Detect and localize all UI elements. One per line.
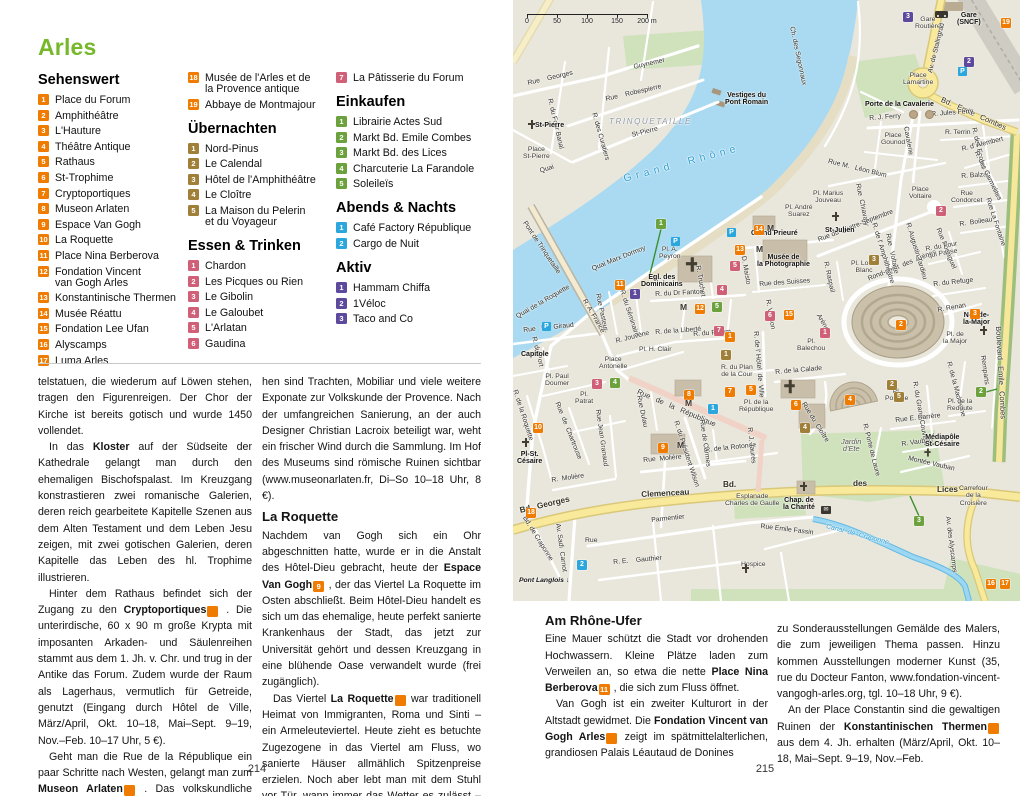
paragraph: telstatuen, die wiederum auf Löwen stehe… xyxy=(38,374,252,439)
inline-map-marker: 7 xyxy=(207,606,218,617)
map-marker-aktiv-3: 3 xyxy=(903,12,913,22)
bold-text-run: Museon Arlaten xyxy=(38,783,123,795)
map-label: St-Pierre xyxy=(535,122,564,129)
legend-item-number: 2 xyxy=(336,238,347,249)
legend-item-label: Les Picques ou Rien xyxy=(205,276,303,288)
legend-item: 16Alyscamps xyxy=(38,339,188,351)
map-marker-hotel-3: 3 xyxy=(869,255,879,265)
city-gate-icon xyxy=(925,110,934,119)
map-marker-sehenswert-15: 15 xyxy=(784,310,794,320)
map-marker-sehenswert-7: 7 xyxy=(725,387,735,397)
legend-item: 2Cargo de Nuit xyxy=(336,238,486,250)
legend-section-heading: Essen & Trinken xyxy=(188,238,338,254)
map-marker-sehenswert-18: 18 xyxy=(526,508,536,518)
legend-item: 5L'Arlatan xyxy=(188,322,338,334)
legend-item-number: 4 xyxy=(336,163,347,174)
map-label: Place Lamartine xyxy=(903,72,933,87)
legend-item-label: Gaudina xyxy=(205,338,245,350)
map-label: Bd. de Craponne xyxy=(521,515,555,563)
map-label: Egl. des Dominicains xyxy=(641,274,683,289)
map-label: Quai de la Roquette xyxy=(515,284,571,321)
map-label: Pl-St. Césaire xyxy=(517,451,542,466)
museum-icon: M xyxy=(677,441,684,450)
map-marker-hotel-2: 2 xyxy=(887,380,897,390)
divider-line xyxy=(38,363,481,364)
map-label: Clemenceau xyxy=(641,488,690,498)
legend-block: Essen & Trinken1Chardon2Les Picques ou R… xyxy=(188,238,338,350)
map-label: Ch. des Segonnaux xyxy=(788,26,808,86)
legend-item-label: Abbaye de Montmajour xyxy=(205,99,316,111)
legend-item-number: 3 xyxy=(38,125,49,136)
legend-item: 3Le Gibolin xyxy=(188,291,338,303)
legend-column-2: 18Musée de l'Arles et de la Provence ant… xyxy=(188,72,338,354)
legend-item-label: Amphithéâtre xyxy=(55,110,119,122)
paragraph: Geht man die Rue de la République ein pa… xyxy=(38,749,252,796)
map-marker-einkaufen-4: 4 xyxy=(610,378,620,388)
page-title: Arles xyxy=(38,34,97,61)
text-run: , der das Viertel La Roquette im Osten a… xyxy=(262,579,481,689)
legend-block: Aktiv1Hammam Chiffa21Véloc3Taco and Co xyxy=(336,260,486,325)
paragraph: Hinter dem Rathaus befindet sich der Zug… xyxy=(38,586,252,749)
map-label: R. Porte de Laure xyxy=(861,423,881,477)
text-run: telstatuen, die wiederum auf Löwen stehe… xyxy=(38,376,252,437)
legend-item-label: Librairie Actes Sud xyxy=(353,116,442,128)
page-number-left: 214 xyxy=(237,763,277,775)
legend-item-number: 2 xyxy=(38,110,49,121)
inline-map-marker: 10 xyxy=(395,695,406,706)
map-marker-hotel-4: 4 xyxy=(800,423,810,433)
paragraph: Das Viertel La Roquette10 war traditione… xyxy=(262,691,481,796)
legend-item: 4Charcuterie La Farandole xyxy=(336,163,486,175)
legend-item-number: 5 xyxy=(336,178,347,189)
legend-item-label: Le Galoubet xyxy=(205,307,263,319)
legend-section-heading: Aktiv xyxy=(336,260,486,276)
map-marker-abends-2: 2 xyxy=(577,560,587,570)
map-marker-sehenswert-1: 1 xyxy=(725,332,735,342)
legend-item-label: L'Hauture xyxy=(55,125,101,137)
map-marker-sehenswert-14: 14 xyxy=(754,225,764,235)
map-label: Pl. André Suarez xyxy=(785,204,813,219)
inline-map-marker: 9 xyxy=(313,581,324,592)
legend-item: 2Les Picques ou Rien xyxy=(188,276,338,288)
parking-icon: P xyxy=(727,228,736,237)
map-marker-sehenswert-3: 3 xyxy=(970,309,980,319)
map-marker-einkaufen-1: 1 xyxy=(656,219,666,229)
map-marker-essen-5: 5 xyxy=(730,261,740,271)
map-marker-sehenswert-6: 6 xyxy=(791,400,801,410)
map-label: Remparts xyxy=(979,355,990,385)
map-label: Av. Sadi Carnot xyxy=(554,523,568,572)
map-label: des xyxy=(853,480,867,487)
legend-item-label: Fondation Lee Ufan xyxy=(55,323,149,335)
legend-item: 1Librairie Actes Sud xyxy=(336,116,486,128)
map-label: R. du Dr Fanton xyxy=(655,288,704,298)
legend-item-label: Place du Forum xyxy=(55,94,130,106)
bold-text-run: Konstantinischen Thermen xyxy=(844,721,987,733)
church-icon xyxy=(831,212,840,221)
scale-label: 50 xyxy=(553,18,561,25)
bus-station-icon xyxy=(935,11,948,18)
legend-item-label: Soleileïs xyxy=(353,178,393,190)
map-label: Esplanade Charles de Gaulle xyxy=(725,493,779,508)
legend-item-number: 4 xyxy=(188,307,199,318)
text-run: , die sich zum Fluss öffnet. xyxy=(611,682,740,694)
map-label: Place St-Pierre xyxy=(523,146,550,161)
map-label: Rue Emile Fassin xyxy=(760,523,814,537)
map-label: Cavalerie xyxy=(902,126,914,156)
map-label: Av. des Alyscamps xyxy=(944,516,958,573)
legend-item-number: 2 xyxy=(336,132,347,143)
map-label: R. des Curatiers xyxy=(590,112,611,161)
legend-section-heading: Einkaufen xyxy=(336,94,486,110)
map-label: R. de la Calade xyxy=(775,365,822,376)
map-label: Pl. de la Major xyxy=(943,331,967,346)
text-run: Geht man die Rue de la République ein pa… xyxy=(38,751,252,779)
map-label: Place Gounod xyxy=(881,132,905,147)
map-overlay: 050100150200 m Rue GeorgesGuynemerRue Ro… xyxy=(513,0,1020,601)
church-icon xyxy=(799,482,808,491)
map-marker-abends-1: 1 xyxy=(708,404,718,414)
body-column-4: zu Sonderausstellungen Gemälde des Maler… xyxy=(777,621,1000,768)
map-label: R. Boileau xyxy=(959,216,993,228)
map-label: Grand Rhône xyxy=(623,145,741,183)
legend-item-number: 3 xyxy=(336,313,347,324)
map-label: R. du Refuge xyxy=(933,277,974,289)
legend-item: 2Markt Bd. Emile Combes xyxy=(336,132,486,144)
map-label: Boulevard Emile Combes xyxy=(995,326,1007,419)
map-label: Pl. A. Peyron xyxy=(659,246,681,261)
map-label: Jardin d'Ete xyxy=(841,438,861,453)
map-label: Rue M. Léon Blum xyxy=(827,158,887,180)
map-label: St-Julien xyxy=(825,227,855,234)
legend-item: 1Chardon xyxy=(188,260,338,272)
map-label: Capitole xyxy=(521,351,549,358)
legend-item-label: La Roquette xyxy=(55,234,113,246)
inline-map-marker: 12 xyxy=(606,733,617,744)
legend-item-label: Taco and Co xyxy=(353,313,413,325)
map-label: Place Antonelle xyxy=(599,356,627,371)
legend-item: 6St-Trophime xyxy=(38,172,188,184)
map-marker-sehenswert-2: 2 xyxy=(896,320,906,330)
map-label: Guynemer xyxy=(633,57,666,71)
legend-item-label: Le Calendal xyxy=(205,158,262,170)
map-label: Montée Vauban xyxy=(907,455,955,473)
text-run: aus dem 4. Jh. erhalten (März/April, Okt… xyxy=(777,737,1000,765)
bold-text-run: La Roquette xyxy=(331,693,394,705)
legend-item-label: Hôtel de l'Amphithéâtre xyxy=(205,174,316,186)
legend-item-label: Musée Réattu xyxy=(55,308,122,320)
map-scale-bar: 050100150200 m xyxy=(527,8,651,26)
map-label: Porte de la Cavalerie xyxy=(865,101,934,108)
post-office-icon: ✉ xyxy=(821,506,831,514)
map-label: Pont de Trinquetaille xyxy=(521,220,562,276)
legend-item-number: 15 xyxy=(38,323,49,334)
paragraph: hen sind Trachten, Mobiliar und viele we… xyxy=(262,374,481,504)
legend-item-label: Hammam Chiffa xyxy=(353,282,430,294)
legend-item-number: 16 xyxy=(38,339,49,350)
body-column-1: telstatuen, die wiederum auf Löwen stehe… xyxy=(38,374,252,796)
legend-item-label: La Pâtisserie du Forum xyxy=(353,72,464,84)
legend-item: 3Taco and Co xyxy=(336,313,486,325)
guidebook-spread: Arles Sehenswert1Place du Forum2Amphithé… xyxy=(0,0,1020,796)
inline-map-marker: 13 xyxy=(988,723,999,734)
map-marker-sehenswert-16: 16 xyxy=(986,579,996,589)
legend-item-label: Rathaus xyxy=(55,156,95,168)
map-label: Gare (SNCF) xyxy=(957,12,981,27)
legend-item: 4Le Cloître xyxy=(188,189,338,201)
map-label: R. E. Gauthier xyxy=(613,555,662,567)
map-label: Rue Georges xyxy=(527,70,574,88)
legend-item-label: 1Véloc xyxy=(353,298,386,310)
legend-item-number: 2 xyxy=(188,158,199,169)
legend-item-number: 8 xyxy=(38,203,49,214)
map-marker-essen-6: 6 xyxy=(765,311,775,321)
parking-icon: P xyxy=(542,322,551,331)
parking-icon: P xyxy=(958,67,967,76)
map-marker-einkaufen-3: 3 xyxy=(914,516,924,526)
legend-item: 3L'Hauture xyxy=(38,125,188,137)
text-run: Das Viertel xyxy=(273,693,331,705)
legend-item: 1Place du Forum xyxy=(38,94,188,106)
inline-map-marker: 11 xyxy=(599,684,610,695)
inline-map-marker: 8 xyxy=(124,785,135,796)
legend-item: 9Espace Van Gogh xyxy=(38,219,188,231)
legend-item-number: 3 xyxy=(336,147,347,158)
legend-item: 5La Maison du Pelerin et du Voyageur xyxy=(188,205,338,228)
legend-item-number: 14 xyxy=(38,308,49,319)
map-label: Musée de la Photographie xyxy=(757,254,810,269)
legend-item-label: Konstantinische Thermen xyxy=(55,292,176,304)
legend-item: 1Hammam Chiffa xyxy=(336,282,486,294)
map-label: Pl. de la Redoute xyxy=(947,398,973,413)
map-marker-einkaufen-2: 2 xyxy=(976,387,986,397)
text-run: hen sind Trachten, Mobiliar und viele we… xyxy=(262,376,481,502)
map-label: Médiapôle St-Césaire xyxy=(925,434,960,449)
legend-item: 8Museon Arlaten xyxy=(38,203,188,215)
map-label: R. Molière xyxy=(551,472,585,484)
legend-item-number: 5 xyxy=(38,156,49,167)
legend-section-heading: Abends & Nachts xyxy=(336,200,486,216)
legend-item-label: La Maison du Pelerin et du Voyageur xyxy=(205,205,305,228)
map-label: Bd. xyxy=(723,481,736,488)
map-label: R. Terrin xyxy=(945,129,971,136)
map-marker-sehenswert-5: 5 xyxy=(746,385,756,395)
legend-item: 14Musée Réattu xyxy=(38,308,188,320)
map-marker-aktiv-1: 1 xyxy=(630,289,640,299)
legend-block: Einkaufen1Librairie Actes Sud2Markt Bd. … xyxy=(336,94,486,190)
church-icon xyxy=(979,326,988,335)
map-marker-hotel-1: 1 xyxy=(721,350,731,360)
map-label: R. Raspail xyxy=(822,261,836,293)
legend-item-label: St-Trophime xyxy=(55,172,113,184)
legend-item-label: Cryptoportiques xyxy=(55,188,130,200)
map-label: Rue Robespierre xyxy=(605,83,662,103)
legend-item: 21Véloc xyxy=(336,298,486,310)
map-marker-einkaufen-5: 5 xyxy=(712,302,722,312)
legend-item: 5Soleileïs xyxy=(336,178,486,190)
map-label: Quai Marx Dormoy xyxy=(591,245,647,273)
map-marker-essen-4: 4 xyxy=(717,285,727,295)
legend-item-number: 2 xyxy=(336,298,347,309)
legend-item: 19Abbaye de Montmajour xyxy=(188,99,338,111)
legend-item-number: 2 xyxy=(188,276,199,287)
legend-item: 5Rathaus xyxy=(38,156,188,168)
legend-item: 2Amphithéâtre xyxy=(38,110,188,122)
legend-item: 18Musée de l'Arles et de la Provence ant… xyxy=(188,72,338,95)
legend-item-number: 1 xyxy=(336,282,347,293)
text-run: In das xyxy=(49,441,93,453)
map-label: Rue Condorcet xyxy=(951,190,982,205)
map-label: Lices xyxy=(937,486,958,493)
map-label: Rue de Chartrouse xyxy=(553,401,583,461)
map-marker-essen-3: 3 xyxy=(592,379,602,389)
church-icon xyxy=(521,438,530,447)
legend-item: 4Théâtre Antique xyxy=(38,141,188,153)
paragraph: zu Sonderausstellungen Gemälde des Maler… xyxy=(777,621,1000,702)
page-number-right: 215 xyxy=(745,763,785,775)
legend-item-label: Museon Arlaten xyxy=(55,203,129,215)
scale-label: 0 xyxy=(525,18,529,25)
legend-block: Sehenswert1Place du Forum2Amphithéâtre3L… xyxy=(38,72,188,367)
legend-item-number: 6 xyxy=(188,338,199,349)
map-label: R. de la Roquette xyxy=(513,389,534,442)
map-label: Pl. Marius Jouveau xyxy=(813,190,843,205)
map-label: Pl. Paul Doumer xyxy=(545,373,569,388)
map-label: R. du Four qui Passe xyxy=(925,240,959,260)
legend-block: Übernachten1Nord-Pinus2Le Calendal3Hôtel… xyxy=(188,121,338,228)
legend-item-number: 1 xyxy=(336,222,347,233)
legend-item-label: Markt Bd. des Lices xyxy=(353,147,447,159)
legend-block: 7La Pâtisserie du Forum xyxy=(336,72,486,84)
legend-item-label: Espace Van Gogh xyxy=(55,219,141,231)
legend-item-label: Le Gibolin xyxy=(205,291,253,303)
paragraph: In das Kloster auf der Südseite der Kath… xyxy=(38,439,252,586)
legend-item: 13Konstantinische Thermen xyxy=(38,292,188,304)
legend-item: 6Gaudina xyxy=(188,338,338,350)
legend-item-label: Café Factory République xyxy=(353,222,471,234)
map-marker-hotel-5: 5 xyxy=(894,392,904,402)
map-label: Quai xyxy=(539,164,555,175)
map-marker-sehenswert-4: 4 xyxy=(845,395,855,405)
map-label: Pl. Patrat xyxy=(575,391,593,406)
legend-item-number: 7 xyxy=(38,188,49,199)
church-icon xyxy=(741,564,750,573)
map-marker-sehenswert-10: 10 xyxy=(533,423,543,433)
city-gate-icon xyxy=(909,110,918,119)
map-label: Rue xyxy=(585,537,597,544)
legend-item: 15Fondation Lee Ufan xyxy=(38,323,188,335)
map-marker-aktiv-2: 2 xyxy=(964,57,974,67)
legend-item-label: Luma Arles xyxy=(55,355,108,367)
legend-item: 7Cryptoportiques xyxy=(38,188,188,200)
map-marker-sehenswert-13: 13 xyxy=(735,245,745,255)
legend-item: 2Le Calendal xyxy=(188,158,338,170)
map-label: Rue des Suisses xyxy=(759,277,810,288)
map-label: Vestiges du Pont Romain xyxy=(725,92,768,107)
museum-icon: M xyxy=(767,224,774,233)
legend-item-number: 12 xyxy=(38,266,49,277)
legend-item: 1Café Factory République xyxy=(336,222,486,234)
body-column-2: hen sind Trachten, Mobiliar und viele we… xyxy=(262,374,481,796)
text-run: war traditionell Heimat von Immigranten,… xyxy=(262,693,481,796)
map-label: TRINQUETAILLE xyxy=(609,118,692,125)
legend-item-label: Place Nina Berberova xyxy=(55,250,159,262)
legend-item-number: 1 xyxy=(336,116,347,127)
legend-item-label: L'Arlatan xyxy=(205,322,247,334)
city-map-arles: 050100150200 m Rue GeorgesGuynemerRue Ro… xyxy=(513,0,1020,601)
map-marker-sehenswert-19: 19 xyxy=(1001,18,1011,28)
map-marker-sehenswert-11: 11 xyxy=(615,280,625,290)
map-label: Parmentier xyxy=(651,514,685,525)
text-run: . Die unterirdische, 60 x 90 m große Kry… xyxy=(38,604,252,746)
section-heading: Am Rhône-Ufer xyxy=(545,613,768,629)
legend-item-label: Alyscamps xyxy=(55,339,107,351)
map-label: Rue Molière xyxy=(643,454,682,465)
map-label: R. J. Ferry xyxy=(869,113,901,123)
legend-item-number: 3 xyxy=(188,174,199,185)
legend-item-number: 5 xyxy=(188,322,199,333)
bold-text-run: Cryptoportiques xyxy=(124,604,207,616)
legend-item-number: 4 xyxy=(38,141,49,152)
legend-item-label: Nord-Pinus xyxy=(205,143,258,155)
museum-icon: M xyxy=(756,245,763,254)
legend-item-label: Musée de l'Arles et de la Provence antiq… xyxy=(205,72,310,95)
church-icon xyxy=(783,380,797,394)
paragraph: Nachdem van Gogh sich ein Ohr abgeschnit… xyxy=(262,528,481,691)
map-label: Pl. H. Clair xyxy=(639,346,671,353)
bold-text-run: Kloster xyxy=(93,441,130,453)
church-icon xyxy=(923,448,931,456)
legend-item-number: 9 xyxy=(38,219,49,230)
museum-icon: M xyxy=(685,399,692,408)
map-label: R. Jules Ferry xyxy=(931,108,974,118)
text-run: zu Sonderausstellungen Gemälde des Maler… xyxy=(777,623,1000,700)
legend-item-number: 4 xyxy=(188,189,199,200)
map-label: R. Augustin Tardieu xyxy=(904,222,928,280)
legend-item-number: 6 xyxy=(38,172,49,183)
legend-item-label: Chardon xyxy=(205,260,246,272)
church-icon xyxy=(527,120,536,129)
paragraph: Van Gogh ist ein zweiter Kulturort in de… xyxy=(545,696,768,761)
legend-item: 12Fondation Vincent van Gogh Arles xyxy=(38,266,188,289)
legend-item: 17Luma Arles xyxy=(38,355,188,367)
map-marker-sehenswert-12: 12 xyxy=(695,304,705,314)
map-marker-sehenswert-9: 9 xyxy=(658,443,668,453)
legend-item-number: 1 xyxy=(188,143,199,154)
legend-section-heading: Sehenswert xyxy=(38,72,188,88)
legend-item-label: Charcuterie La Farandole xyxy=(353,163,474,175)
legend-item-number: 7 xyxy=(336,72,347,83)
body-column-3: Am Rhône-UferEine Mauer schützt die Stad… xyxy=(545,608,768,762)
section-heading: La Roquette xyxy=(262,509,481,525)
legend-item-number: 19 xyxy=(188,99,199,110)
legend-item-number: 3 xyxy=(188,291,199,302)
legend-item: 7La Pâtisserie du Forum xyxy=(336,72,486,84)
legend-item: 10La Roquette xyxy=(38,234,188,246)
scale-label: 150 xyxy=(611,18,623,25)
legend-item-number: 1 xyxy=(38,94,49,105)
legend-item-label: Fondation Vincent van Gogh Arles xyxy=(55,266,141,289)
map-marker-essen-7: 7 xyxy=(714,326,724,336)
legend-block: Abends & Nachts1Café Factory République2… xyxy=(336,200,486,250)
map-marker-essen-1: 1 xyxy=(820,328,830,338)
legend-item: 11Place Nina Berberova xyxy=(38,250,188,262)
scale-label: 200 m xyxy=(637,18,656,25)
map-label: Chap. de la Charité xyxy=(783,497,815,512)
legend-item-number: 13 xyxy=(38,292,49,303)
legend-item-label: Markt Bd. Emile Combes xyxy=(353,132,471,144)
map-label: Place Voltaire xyxy=(909,186,932,201)
